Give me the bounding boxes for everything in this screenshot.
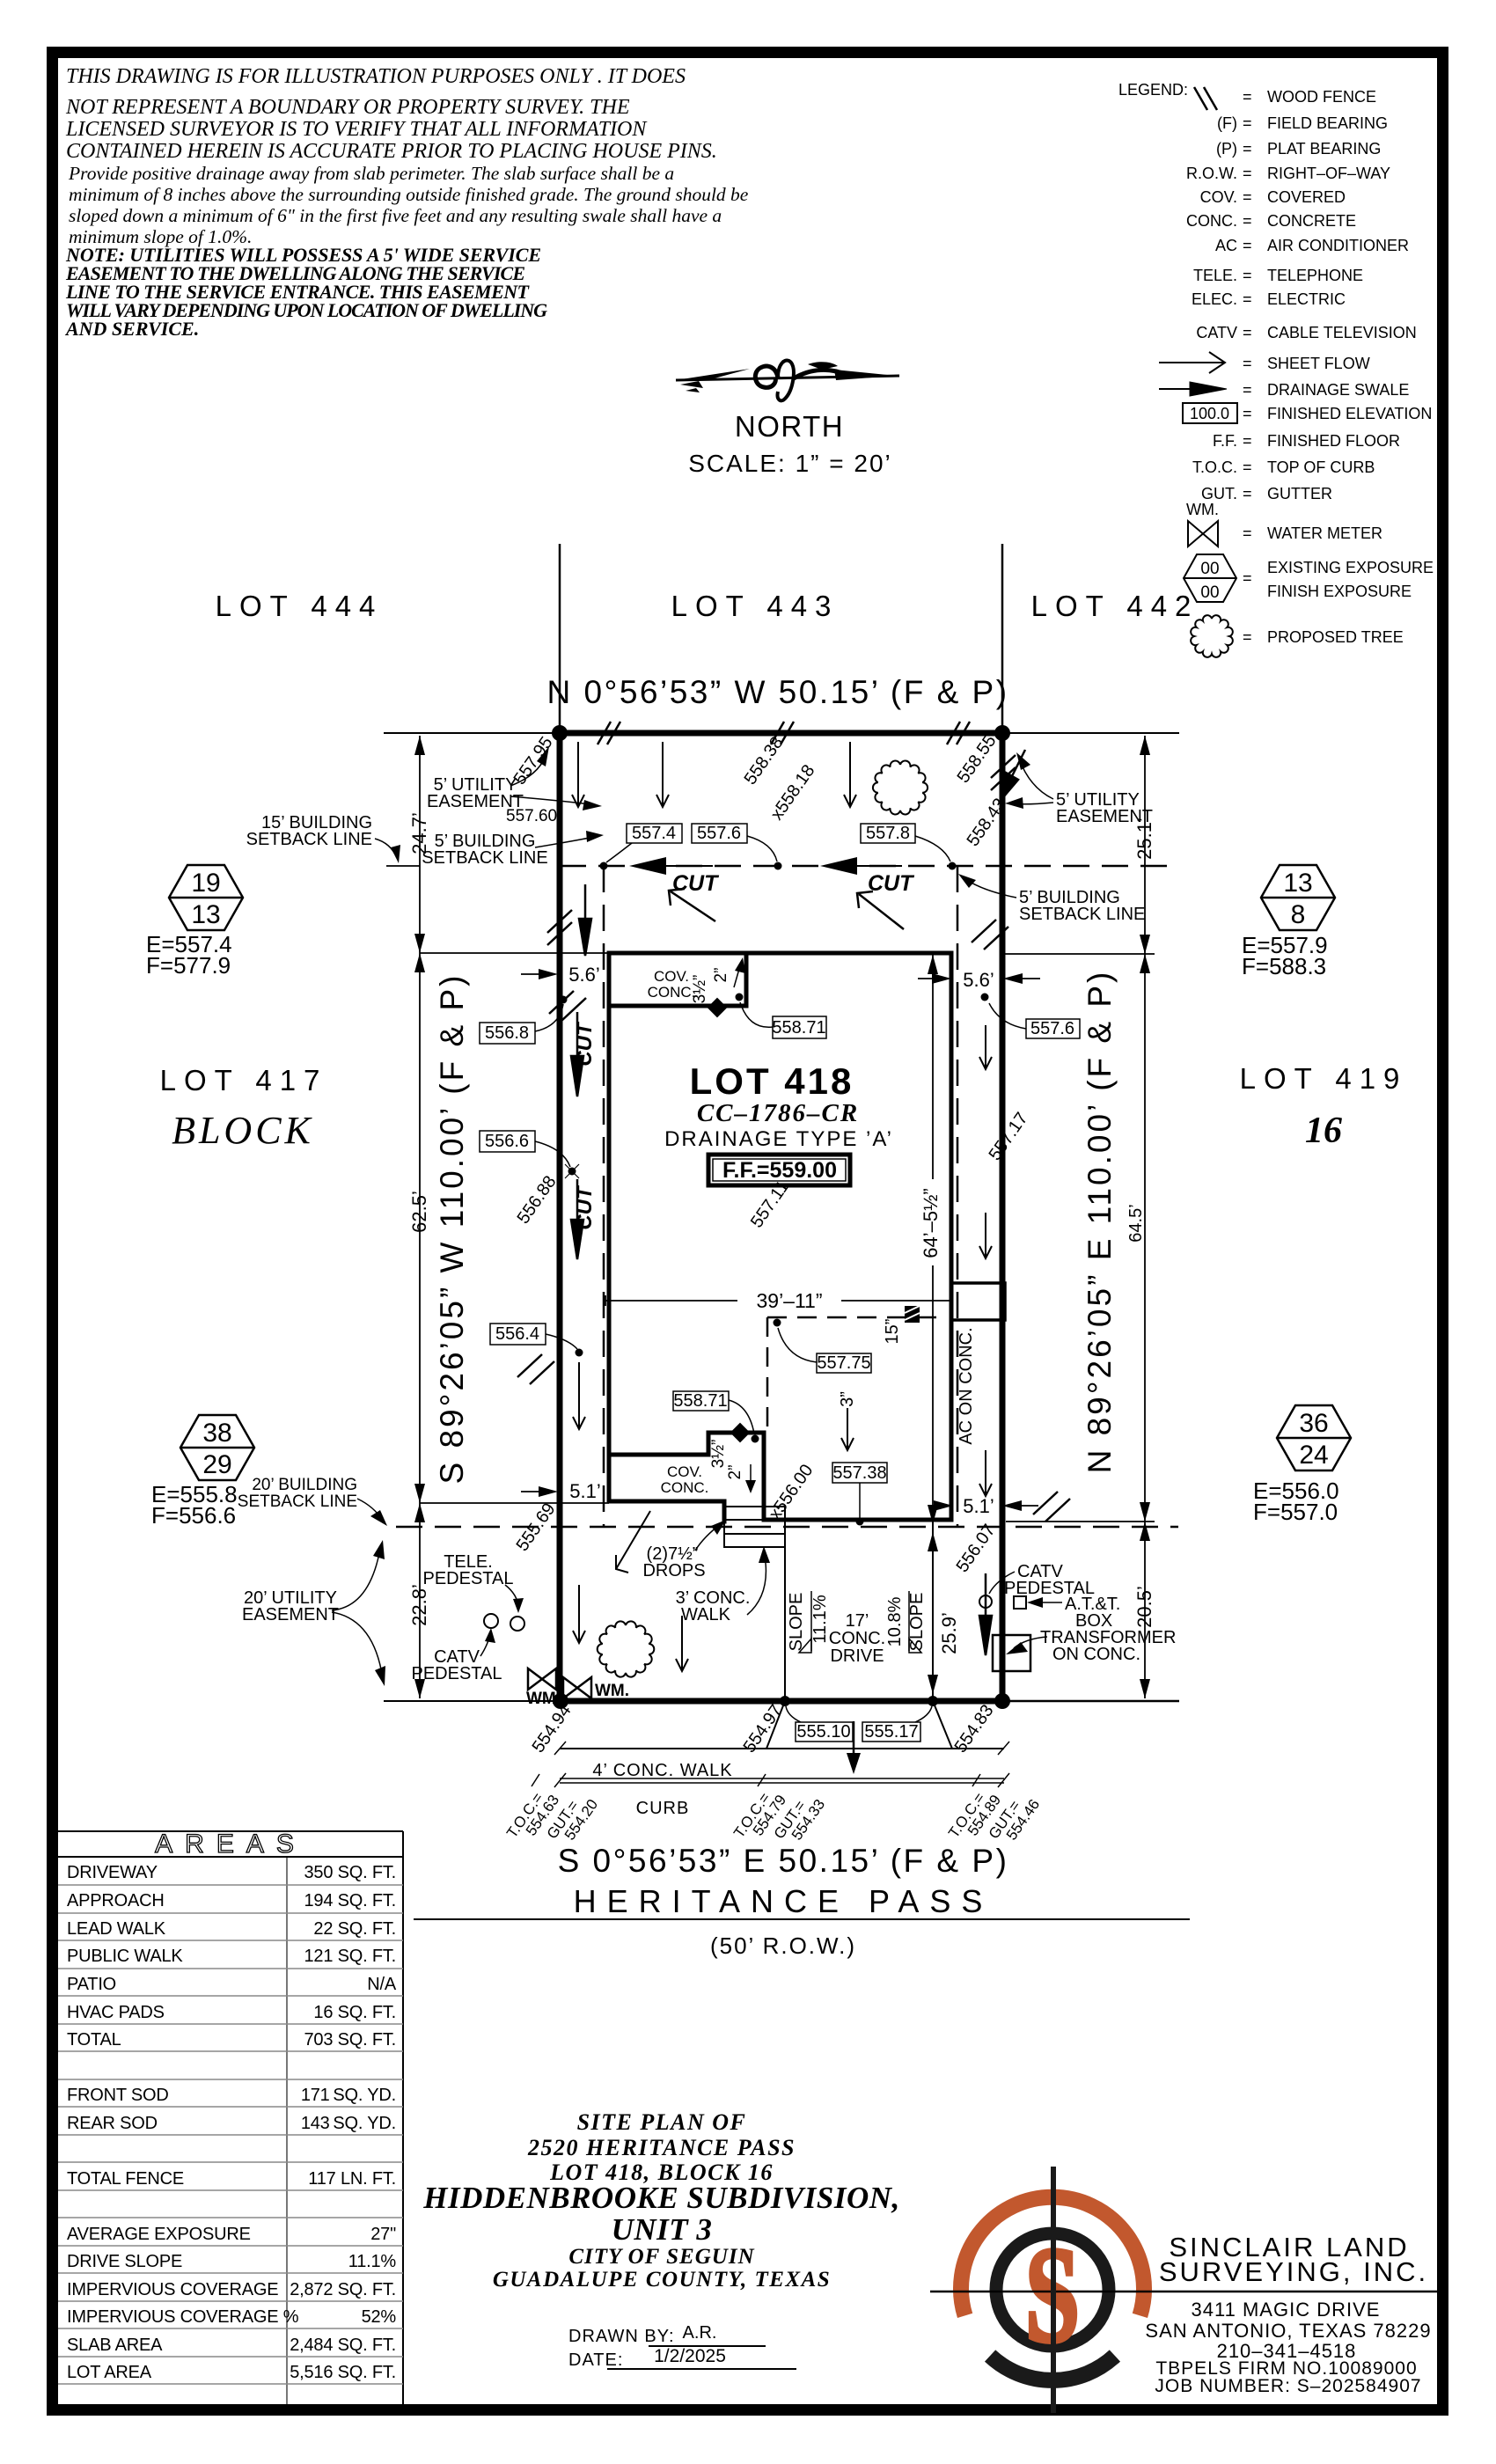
svg-text:CONC.: CONC. (1186, 212, 1237, 230)
svg-text:CUT: CUT (573, 1184, 597, 1230)
svg-text:CABLE TELEVISION: CABLE TELEVISION (1267, 324, 1417, 341)
svg-text:100.0: 100.0 (1190, 405, 1229, 422)
svg-text:T.O.C.: T.O.C. (1192, 458, 1237, 476)
svg-text:Provide positive drainage away: Provide positive drainage away from slab… (68, 163, 674, 184)
svg-text:16 SQ. FT.: 16 SQ. FT. (313, 2003, 396, 2022)
svg-text:SETBACK LINE: SETBACK LINE (238, 1492, 357, 1511)
svg-text:AND SERVICE.: AND SERVICE. (64, 318, 199, 340)
svg-text:556.6: 556.6 (485, 1132, 529, 1151)
svg-text:SLOPE: SLOPE (787, 1593, 806, 1652)
svg-text:SAN ANTONIO, TEXAS 78229: SAN ANTONIO, TEXAS 78229 (1145, 2320, 1431, 2342)
svg-text:25.9’: 25.9’ (938, 1612, 960, 1654)
svg-text:121 SQ. FT.: 121 SQ. FT. (304, 1947, 396, 1966)
svg-text:2,872 SQ. FT.: 2,872 SQ. FT. (290, 2280, 396, 2299)
svg-text:WM.: WM. (595, 1682, 629, 1700)
svg-text:8: 8 (1291, 900, 1306, 929)
svg-text:sloped down a minimum of 6" in: sloped down a minimum of 6" in the first… (69, 205, 722, 226)
svg-text:EASEMENT: EASEMENT (427, 792, 524, 811)
svg-text:AIR CONDITIONER: AIR CONDITIONER (1267, 237, 1409, 254)
svg-text:FINISHED FLOOR: FINISHED FLOOR (1267, 432, 1400, 450)
svg-text:1/2/2025: 1/2/2025 (654, 2346, 726, 2366)
svg-text:555.17: 555.17 (864, 1722, 918, 1742)
svg-text:DATE:: DATE: (568, 2350, 623, 2370)
svg-text:DRAINAGE SWALE: DRAINAGE SWALE (1267, 381, 1409, 399)
svg-text:JOB NUMBER: S–202584907: JOB NUMBER: S–202584907 (1155, 2376, 1421, 2396)
svg-text:SETBACK LINE: SETBACK LINE (246, 830, 372, 849)
svg-text:CONTAINED HEREIN IS ACCURATE P: CONTAINED HEREIN IS ACCURATE PRIOR TO PL… (66, 140, 717, 163)
svg-text:CONC.: CONC. (648, 984, 696, 1001)
svg-text:5.1’: 5.1’ (569, 1480, 600, 1502)
svg-text:LEAD WALK: LEAD WALK (67, 1919, 166, 1939)
svg-text:LOT 442: LOT 442 (1031, 590, 1199, 622)
svg-text:WALK: WALK (681, 1605, 731, 1624)
svg-text:TOP OF CURB: TOP OF CURB (1267, 458, 1375, 476)
svg-text:A.R.: A.R. (683, 2323, 717, 2343)
svg-text:38: 38 (202, 1419, 231, 1448)
svg-text:LOT 417: LOT 417 (160, 1064, 328, 1096)
svg-text:CURB: CURB (636, 1799, 690, 1818)
svg-text:CONC.: CONC. (829, 1629, 885, 1648)
svg-text:COV.: COV. (654, 968, 689, 985)
svg-text:=: = (1243, 485, 1252, 502)
svg-text:=: = (1243, 267, 1252, 284)
svg-text:=: = (1243, 212, 1252, 230)
svg-text:HVAC PADS: HVAC PADS (67, 2003, 165, 2022)
svg-text:556.8: 556.8 (485, 1023, 529, 1043)
svg-text:20’ BUILDING: 20’ BUILDING (252, 1476, 357, 1494)
svg-text:IMPERVIOUS COVERAGE %: IMPERVIOUS COVERAGE % (67, 2307, 299, 2327)
svg-text:17’: 17’ (846, 1611, 869, 1631)
svg-text:4’ CONC. WALK: 4’ CONC. WALK (592, 1761, 732, 1780)
svg-text:N 0°56’53” W 50.15’ (F & P): N 0°56’53” W 50.15’ (F & P) (546, 674, 1008, 710)
svg-text:CONC.: CONC. (661, 1479, 709, 1496)
svg-text:194 SQ. FT.: 194 SQ. FT. (304, 1891, 396, 1910)
svg-text:10.8%: 10.8% (885, 1596, 905, 1646)
svg-text:IMPERVIOUS COVERAGE: IMPERVIOUS COVERAGE (67, 2280, 278, 2299)
svg-text:HIDDENBROOKE SUBDIVISION,: HIDDENBROOKE SUBDIVISION, (422, 2181, 900, 2215)
svg-text:GUADALUPE COUNTY, TEXAS: GUADALUPE COUNTY, TEXAS (493, 2268, 831, 2292)
svg-text:558.71: 558.71 (772, 1018, 825, 1038)
svg-text:(F): (F) (1217, 114, 1237, 132)
svg-text:EXISTING EXPOSURE: EXISTING EXPOSURE (1267, 559, 1434, 576)
svg-text:FRONT SOD: FRONT SOD (67, 2086, 169, 2105)
svg-text:3”: 3” (838, 1391, 857, 1407)
svg-text:(P): (P) (1216, 140, 1237, 158)
svg-text:AVERAGE EXPOSURE: AVERAGE EXPOSURE (67, 2225, 251, 2244)
svg-text:EASEMENT: EASEMENT (1056, 807, 1153, 826)
svg-text:171 SQ. YD.: 171 SQ. YD. (301, 2086, 396, 2105)
svg-text:=: = (1243, 524, 1252, 542)
svg-text:3411 MAGIC DRIVE: 3411 MAGIC DRIVE (1192, 2299, 1381, 2321)
svg-text:TOTAL: TOTAL (67, 2030, 121, 2050)
svg-text:143 SQ. YD.: 143 SQ. YD. (301, 2114, 396, 2133)
svg-text:ON CONC.: ON CONC. (1052, 1645, 1140, 1664)
svg-text:PLAT BEARING: PLAT BEARING (1267, 140, 1381, 158)
svg-text:=: = (1243, 114, 1252, 132)
svg-text:5,516 SQ. FT.: 5,516 SQ. FT. (290, 2363, 396, 2382)
svg-text:F.F.: F.F. (1213, 432, 1237, 450)
svg-text:NOT REPRESENT A BOUNDARY OR PR: NOT REPRESENT A BOUNDARY OR PROPERTY SUR… (65, 96, 630, 119)
svg-text:=: = (1243, 165, 1252, 182)
svg-text:THIS DRAWING IS FOR ILLUSTRATI: THIS DRAWING IS FOR ILLUSTRATION PURPOSE… (66, 65, 686, 88)
svg-text:00: 00 (1200, 560, 1219, 578)
svg-text:N/A: N/A (367, 1975, 397, 1994)
svg-text:LEGEND:: LEGEND: (1118, 81, 1188, 99)
svg-text:ELECTRIC: ELECTRIC (1267, 290, 1346, 308)
svg-text:SETBACK LINE: SETBACK LINE (1019, 905, 1145, 924)
svg-text:FINISHED ELEVATION: FINISHED ELEVATION (1267, 405, 1432, 422)
svg-text:CUT: CUT (573, 1021, 597, 1067)
svg-text:COV.: COV. (667, 1463, 702, 1480)
svg-text:SLAB AREA: SLAB AREA (67, 2336, 163, 2355)
svg-text:557.75: 557.75 (817, 1353, 870, 1373)
svg-text:PUBLIC WALK: PUBLIC WALK (67, 1947, 183, 1966)
svg-text:=: = (1243, 88, 1252, 106)
svg-text:S 0°56’53” E 50.15’ (F & P): S 0°56’53” E 50.15’ (F & P) (558, 1843, 1009, 1879)
svg-text:UNIT 3: UNIT 3 (612, 2212, 713, 2247)
svg-text:27": 27" (370, 2225, 396, 2244)
svg-text:F=557.0: F=557.0 (1253, 1499, 1338, 1525)
svg-text:556.4: 556.4 (495, 1324, 539, 1344)
svg-text:558.71: 558.71 (673, 1391, 727, 1411)
svg-text:CATV: CATV (1196, 324, 1237, 341)
svg-text:13: 13 (1283, 869, 1312, 898)
svg-text:DRIVE: DRIVE (830, 1646, 884, 1666)
svg-text:557.6: 557.6 (697, 824, 741, 843)
svg-text:TOTAL FENCE: TOTAL FENCE (67, 2169, 184, 2189)
svg-text:557.4: 557.4 (632, 824, 676, 843)
svg-text:39’–11”: 39’–11” (756, 1289, 822, 1312)
svg-text:SETBACK LINE: SETBACK LINE (422, 848, 547, 868)
svg-text:F=556.6: F=556.6 (151, 1502, 236, 1529)
svg-text:N 89°26’05” E 110.00’ (F & P): N 89°26’05” E 110.00’ (F & P) (1082, 970, 1118, 1474)
svg-text:PEDESTAL: PEDESTAL (412, 1664, 502, 1683)
svg-text:AC: AC (1215, 237, 1237, 254)
svg-text:=: = (1243, 458, 1252, 476)
svg-text:=: = (1243, 237, 1252, 254)
svg-text:=: = (1243, 140, 1252, 158)
svg-text:CONCRETE: CONCRETE (1267, 212, 1356, 230)
svg-text:SURVEYING, INC.: SURVEYING, INC. (1159, 2256, 1428, 2287)
svg-text:WM.: WM. (1186, 501, 1219, 518)
svg-text:DRIVEWAY: DRIVEWAY (67, 1863, 158, 1882)
svg-text:=: = (1243, 381, 1252, 399)
svg-text:5.6’: 5.6’ (568, 964, 599, 986)
svg-text:CC–1786–CR: CC–1786–CR (697, 1099, 859, 1127)
svg-text:64.5’: 64.5’ (1126, 1204, 1146, 1242)
svg-text:F=577.9: F=577.9 (146, 952, 231, 979)
svg-text:11.1%: 11.1% (348, 2252, 397, 2271)
svg-text:COVERED: COVERED (1267, 188, 1346, 206)
svg-text:DROPS: DROPS (642, 1561, 705, 1580)
svg-text:22 SQ. FT.: 22 SQ. FT. (313, 1919, 396, 1939)
svg-text:FIELD BEARING: FIELD BEARING (1267, 114, 1388, 132)
svg-text:=: = (1243, 569, 1252, 587)
svg-text:GUT.: GUT. (1201, 485, 1237, 502)
svg-text:=: = (1243, 405, 1252, 422)
svg-text:SLOPE: SLOPE (907, 1593, 927, 1652)
svg-text:WOOD FENCE: WOOD FENCE (1267, 88, 1376, 106)
svg-text:703 SQ. FT.: 703 SQ. FT. (304, 2030, 396, 2050)
svg-text:ELEC.: ELEC. (1192, 290, 1237, 308)
svg-text:555.10: 555.10 (796, 1722, 850, 1742)
svg-text:20.5’: 20.5’ (1133, 1586, 1155, 1628)
svg-text:SHEET FLOW: SHEET FLOW (1267, 355, 1370, 372)
svg-text:22.8’: 22.8’ (408, 1584, 430, 1626)
svg-text:5.1’: 5.1’ (963, 1495, 994, 1517)
svg-text:TELEPHONE: TELEPHONE (1267, 267, 1363, 284)
svg-text:AC ON CONC.: AC ON CONC. (957, 1327, 976, 1444)
svg-text:2,484 SQ. FT.: 2,484 SQ. FT. (290, 2336, 396, 2355)
svg-text:62.5’: 62.5’ (408, 1191, 430, 1233)
svg-text:BLOCK: BLOCK (172, 1109, 314, 1152)
svg-text:LOT 444: LOT 444 (216, 590, 384, 622)
svg-text:16: 16 (1305, 1111, 1342, 1151)
svg-text:3½”: 3½” (709, 1440, 728, 1469)
svg-text:S 89°26’05” W 110.00’ (F & P): S 89°26’05” W 110.00’ (F & P) (434, 973, 470, 1485)
svg-text:2”: 2” (726, 1465, 744, 1480)
svg-text:AREAS: AREAS (155, 1830, 306, 1859)
svg-text:LOT 419: LOT 419 (1240, 1062, 1408, 1095)
svg-text:HERITANCE PASS: HERITANCE PASS (574, 1883, 994, 1919)
svg-text:=: = (1243, 188, 1252, 206)
svg-text:117 LN. FT.: 117 LN. FT. (308, 2169, 396, 2189)
svg-text:SITE PLAN OF: SITE PLAN OF (577, 2109, 747, 2135)
svg-text:REAR SOD: REAR SOD (67, 2114, 158, 2133)
svg-text:minimum of 8 inches above the: minimum of 8 inches above the surroundin… (69, 184, 749, 205)
svg-text:APPROACH: APPROACH (67, 1891, 165, 1910)
svg-text:24: 24 (1299, 1441, 1328, 1470)
svg-text:NORTH: NORTH (735, 410, 844, 443)
svg-text:(50’ R.O.W.): (50’ R.O.W.) (710, 1932, 856, 1959)
svg-text:557.6: 557.6 (1030, 1019, 1074, 1038)
svg-text:FINISH EXPOSURE: FINISH EXPOSURE (1267, 583, 1412, 600)
svg-text:WATER METER: WATER METER (1267, 524, 1382, 542)
svg-text:PROPOSED TREE: PROPOSED TREE (1267, 628, 1404, 646)
svg-text:PATIO: PATIO (67, 1975, 116, 1994)
svg-text:=: = (1243, 432, 1252, 450)
svg-text:PEDESTAL: PEDESTAL (423, 1569, 514, 1588)
svg-text:COV.: COV. (1200, 188, 1237, 206)
svg-text:350 SQ. FT.: 350 SQ. FT. (304, 1863, 396, 1882)
svg-text:CITY OF SEGUIN: CITY OF SEGUIN (568, 2245, 754, 2269)
svg-text:11.1%: 11.1% (810, 1595, 830, 1643)
svg-text:2520 HERITANCE PASS: 2520 HERITANCE PASS (527, 2135, 796, 2160)
svg-text:CUT: CUT (672, 871, 720, 896)
svg-text:557.38: 557.38 (832, 1463, 886, 1483)
svg-text:64’–5½”: 64’–5½” (920, 1188, 942, 1258)
svg-text:TELE.: TELE. (1193, 267, 1237, 284)
svg-text:36: 36 (1299, 1409, 1328, 1438)
svg-text:DRIVE SLOPE: DRIVE SLOPE (67, 2252, 182, 2271)
svg-text:R.O.W.: R.O.W. (1186, 165, 1237, 182)
svg-text:DRAWN BY:: DRAWN BY: (568, 2327, 675, 2346)
svg-text:13: 13 (191, 900, 220, 929)
svg-text:557.8: 557.8 (866, 824, 910, 843)
svg-text:2”: 2” (712, 968, 730, 983)
svg-text:5.6’: 5.6’ (963, 969, 994, 991)
svg-text:LOT 443: LOT 443 (671, 590, 840, 622)
svg-text:29: 29 (202, 1450, 231, 1479)
svg-text:F=588.3: F=588.3 (1242, 953, 1326, 979)
svg-text:52%: 52% (362, 2307, 397, 2327)
svg-text:19: 19 (191, 869, 220, 898)
svg-text:15”: 15” (883, 1319, 902, 1345)
svg-text:LICENSED SURVEYOR IS TO VERIFY: LICENSED SURVEYOR IS TO VERIFY THAT ALL … (65, 118, 648, 141)
svg-text:=: = (1243, 324, 1252, 341)
svg-text:GUTTER: GUTTER (1267, 485, 1332, 502)
svg-text:RIGHT–OF–WAY: RIGHT–OF–WAY (1267, 165, 1390, 182)
svg-text:DRAINAGE TYPE ’A’: DRAINAGE TYPE ’A’ (664, 1127, 893, 1151)
svg-text:LOT AREA: LOT AREA (67, 2363, 152, 2382)
svg-text:00: 00 (1200, 583, 1219, 602)
svg-text:CUT: CUT (868, 871, 915, 896)
svg-text:EASEMENT: EASEMENT (242, 1605, 339, 1624)
svg-text:3½”: 3½” (691, 975, 709, 1004)
svg-text:=: = (1243, 628, 1252, 646)
svg-text:=: = (1243, 355, 1252, 372)
svg-text:LOT 418: LOT 418 (690, 1060, 854, 1102)
svg-text:WM.: WM. (526, 1690, 561, 1708)
svg-text:=: = (1243, 290, 1252, 308)
svg-text:SCALE: 1” = 20’: SCALE: 1” = 20’ (688, 450, 892, 477)
